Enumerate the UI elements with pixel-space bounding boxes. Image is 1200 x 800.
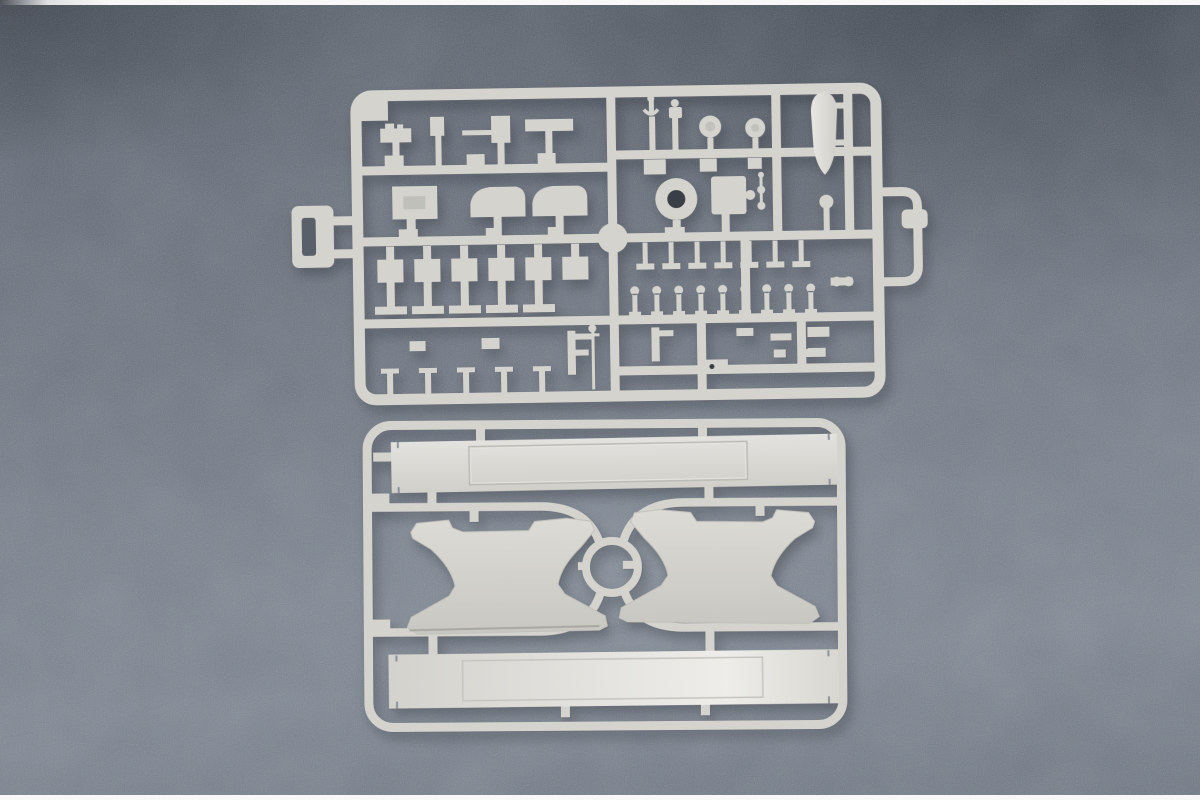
equipment-box-recess bbox=[403, 196, 425, 209]
fitting-box-part bbox=[711, 176, 756, 237]
i-post-row bbox=[380, 337, 551, 400]
f-bracket-part bbox=[567, 324, 600, 389]
right-bulkhead-part bbox=[619, 509, 820, 625]
frame-corner-block bbox=[356, 101, 388, 122]
ventilator-dome-parts bbox=[470, 185, 588, 240]
hanging-label-tab bbox=[291, 205, 360, 268]
hull-sprue bbox=[367, 422, 843, 727]
knob-part bbox=[669, 99, 682, 118]
lower-deck-strip-part bbox=[388, 649, 839, 708]
side-loop-knob-part bbox=[901, 209, 927, 228]
sprues-illustration bbox=[0, 0, 1200, 800]
t-post-row bbox=[636, 240, 810, 270]
paper-edge-strip-top bbox=[0, 0, 1200, 5]
sprue-photo bbox=[0, 0, 1200, 800]
gun-and-fitting-parts bbox=[380, 115, 574, 172]
paper-edge-strip-bottom bbox=[0, 795, 1200, 800]
t-foot-row bbox=[375, 279, 555, 315]
rect-fitting-row bbox=[377, 243, 589, 282]
left-bulkhead-part bbox=[407, 518, 608, 634]
searchlight-parts bbox=[699, 115, 765, 139]
bollard-row bbox=[629, 283, 817, 318]
upper-deck-strip-part bbox=[391, 434, 838, 494]
small-disc-column bbox=[757, 172, 766, 210]
funnel-ring-part bbox=[655, 178, 698, 238]
anchor-part bbox=[644, 95, 658, 116]
runner-junction-boss bbox=[598, 223, 628, 253]
equipment-box-part bbox=[392, 186, 438, 242]
detail-sprue bbox=[290, 87, 931, 401]
